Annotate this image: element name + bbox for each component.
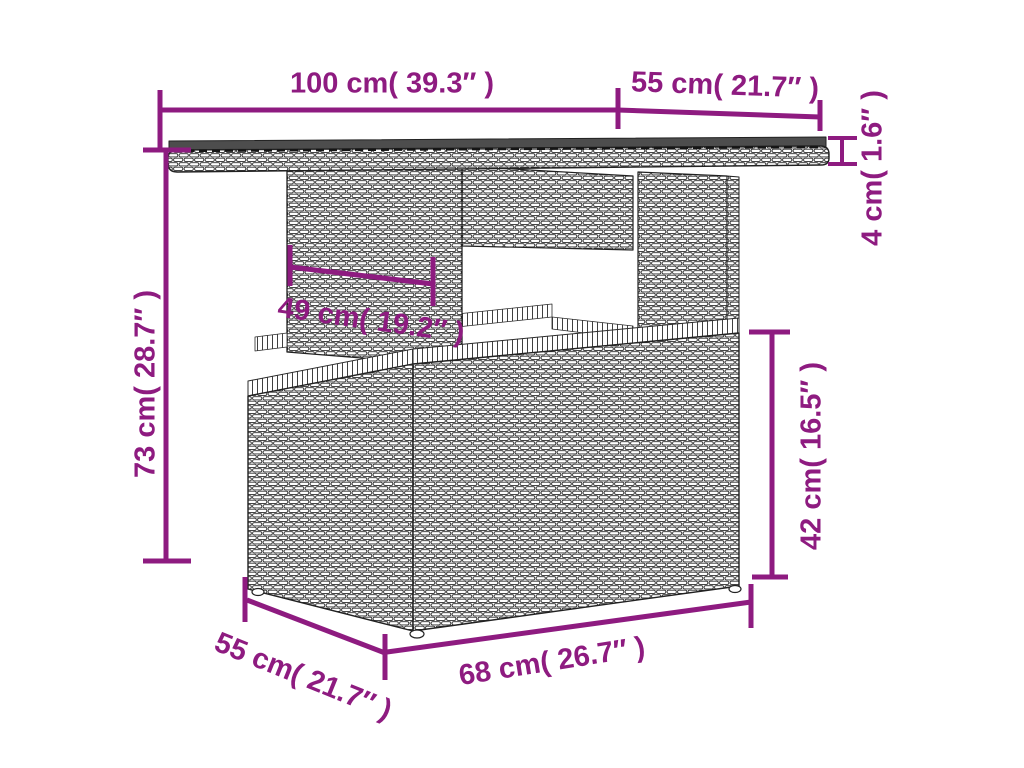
dim-label-top-depth: 55 cm( 21.7″ ) — [630, 66, 819, 106]
dim-line-top-depth — [618, 110, 820, 117]
product-diagram: 100 cm( 39.3″ ) 55 cm( 21.7″ ) 4 cm( 1.6… — [0, 0, 1024, 768]
base-front-face — [413, 333, 739, 631]
left-rim-roll — [255, 333, 287, 351]
foot-right — [729, 586, 741, 593]
pedestal-side-face — [462, 166, 633, 250]
foot-center — [410, 630, 424, 638]
foot-left — [252, 589, 264, 596]
right-leg-front — [638, 172, 727, 340]
dim-label-top-thickness: 4 cm( 1.6″ ) — [857, 90, 890, 246]
dim-label-base-height: 42 cm( 16.5″ ) — [796, 362, 829, 550]
base-left-face — [248, 364, 413, 631]
inner-rim-roll-left — [457, 304, 552, 327]
dim-label-top-width: 100 cm( 39.3″ ) — [290, 68, 494, 101]
dim-label-overall-height: 73 cm( 28.7″ ) — [130, 290, 163, 478]
right-leg-side — [727, 176, 739, 340]
